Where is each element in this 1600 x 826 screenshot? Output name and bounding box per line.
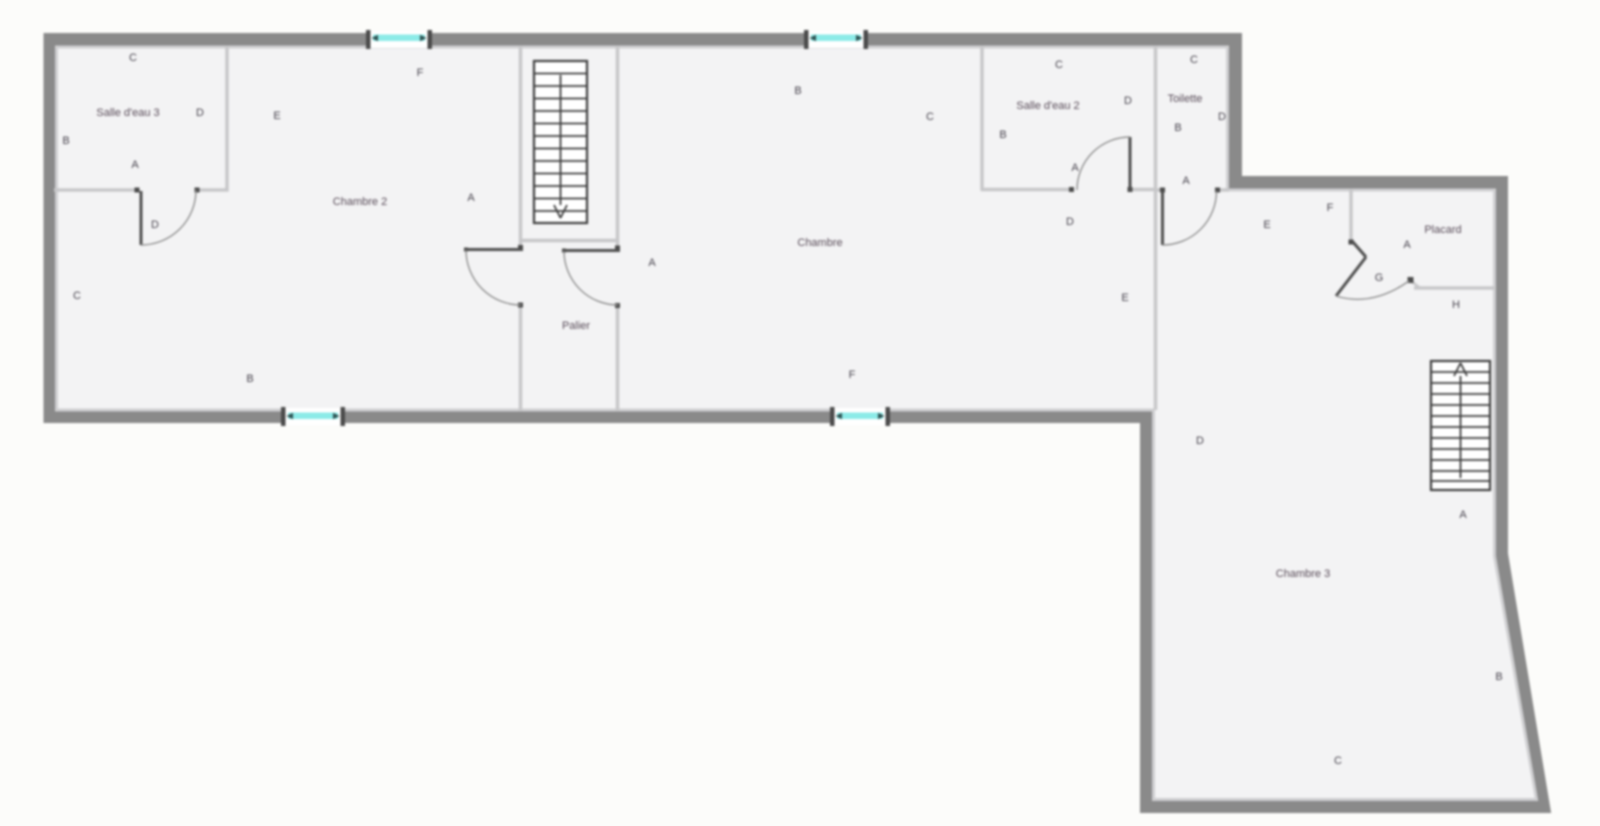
svg-text:Placard: Placard bbox=[1424, 224, 1461, 236]
svg-text:D: D bbox=[1218, 111, 1226, 123]
svg-text:D: D bbox=[151, 219, 159, 231]
svg-text:C: C bbox=[129, 52, 137, 64]
svg-text:D: D bbox=[1124, 95, 1132, 107]
svg-text:B: B bbox=[1174, 122, 1181, 134]
svg-text:D: D bbox=[1196, 435, 1204, 447]
svg-text:H: H bbox=[1452, 299, 1460, 311]
svg-text:Toilette: Toilette bbox=[1168, 93, 1203, 105]
svg-text:A: A bbox=[1182, 175, 1190, 187]
svg-text:B: B bbox=[999, 129, 1006, 141]
svg-text:B: B bbox=[794, 85, 801, 97]
svg-text:Chambre 3: Chambre 3 bbox=[1276, 568, 1330, 580]
svg-text:Salle d'eau 2: Salle d'eau 2 bbox=[1016, 100, 1079, 112]
svg-text:C: C bbox=[73, 290, 81, 302]
svg-text:A: A bbox=[1403, 239, 1411, 251]
svg-text:A: A bbox=[131, 159, 139, 171]
svg-text:E: E bbox=[1263, 219, 1270, 231]
svg-text:A: A bbox=[1459, 509, 1467, 521]
svg-text:B: B bbox=[1495, 671, 1502, 683]
svg-text:A: A bbox=[467, 192, 475, 204]
svg-text:F: F bbox=[417, 67, 424, 79]
svg-text:C: C bbox=[1334, 755, 1342, 767]
svg-text:D: D bbox=[1066, 216, 1074, 228]
svg-text:Salle d'eau 3: Salle d'eau 3 bbox=[96, 107, 159, 119]
svg-text:Chambre: Chambre bbox=[797, 237, 842, 249]
svg-text:A: A bbox=[1071, 162, 1079, 174]
svg-text:Chambre 2: Chambre 2 bbox=[333, 196, 387, 208]
svg-text:D: D bbox=[196, 107, 204, 119]
svg-text:C: C bbox=[926, 111, 934, 123]
svg-text:G: G bbox=[1375, 272, 1384, 284]
svg-text:Palier: Palier bbox=[562, 320, 590, 332]
svg-text:E: E bbox=[1121, 292, 1128, 304]
svg-text:C: C bbox=[1190, 54, 1198, 66]
svg-text:F: F bbox=[1327, 202, 1334, 214]
svg-text:B: B bbox=[62, 135, 69, 147]
svg-text:F: F bbox=[849, 369, 856, 381]
svg-text:C: C bbox=[1055, 59, 1063, 71]
svg-text:A: A bbox=[648, 257, 656, 269]
svg-text:E: E bbox=[273, 110, 280, 122]
svg-text:B: B bbox=[246, 373, 253, 385]
